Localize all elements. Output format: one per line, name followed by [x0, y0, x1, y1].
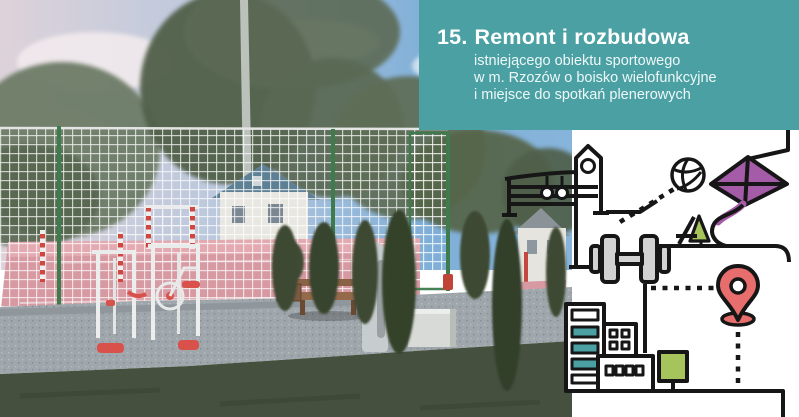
- banner-subtitle: istniejącego obiektu sportowego w m. Rzo…: [474, 53, 791, 104]
- presentation-slide: 15.Remont i rozbudowa istniejącego obiek…: [0, 0, 799, 417]
- striped-pole: [118, 232, 123, 282]
- subtitle-line: istniejącego obiektu sportowego: [474, 53, 791, 70]
- striped-pole: [40, 230, 45, 282]
- project-banner: 15.Remont i rozbudowa istniejącego obiek…: [419, 0, 799, 130]
- red-bin: [443, 274, 453, 290]
- subtitle-line: w m. Rzozów o boisko wielofunkcyjne: [474, 70, 791, 87]
- project-title-text: Remont i rozbudowa: [475, 25, 690, 49]
- project-number: 15.: [437, 25, 468, 49]
- icon-panel: [572, 130, 799, 417]
- subtitle-line: i miejsce do spotkań plenerowych: [474, 87, 791, 104]
- banner-title: 15.Remont i rozbudowa: [437, 25, 791, 50]
